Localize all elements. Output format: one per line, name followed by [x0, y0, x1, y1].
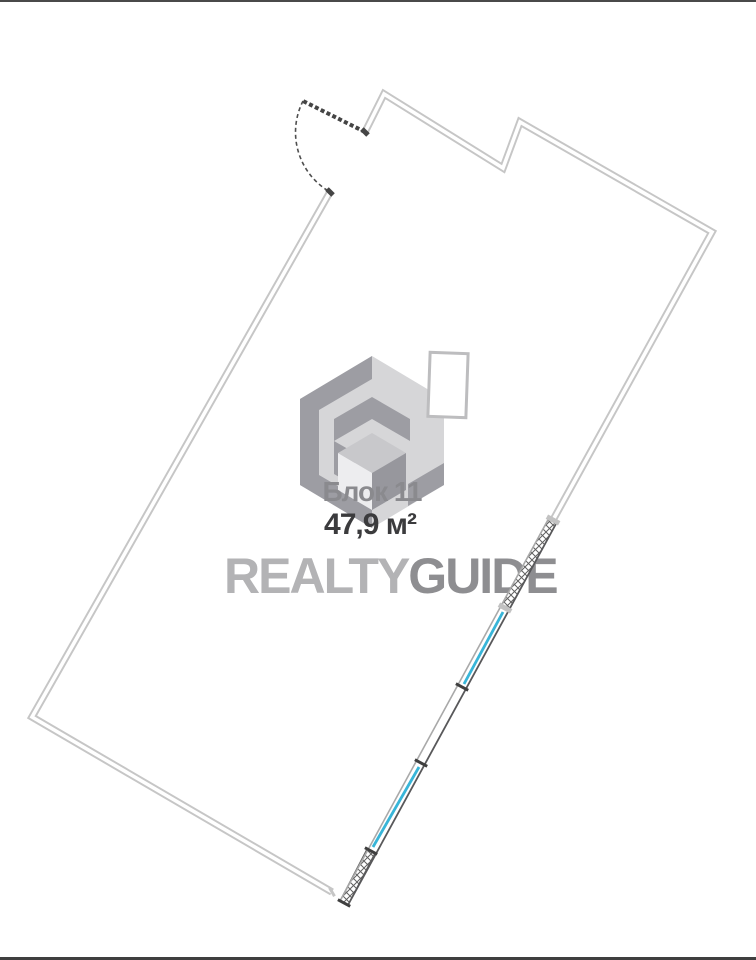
door-leaf — [303, 101, 365, 132]
window-band-inner-edge — [340, 518, 549, 901]
floorplan-drawing — [0, 0, 756, 960]
door-swing-arc — [296, 101, 330, 192]
floorplan-page: Блок 11 47,9 м² REALTYGUIDE — [0, 0, 756, 960]
window-band-outer-edge — [348, 522, 557, 905]
balcony-hatch-segment-top — [501, 518, 557, 610]
window-glass-1 — [464, 612, 503, 684]
balcony-hatch-segment-bottom — [340, 849, 375, 905]
window-glass-2 — [373, 767, 419, 847]
walls-outline — [32, 94, 712, 892]
